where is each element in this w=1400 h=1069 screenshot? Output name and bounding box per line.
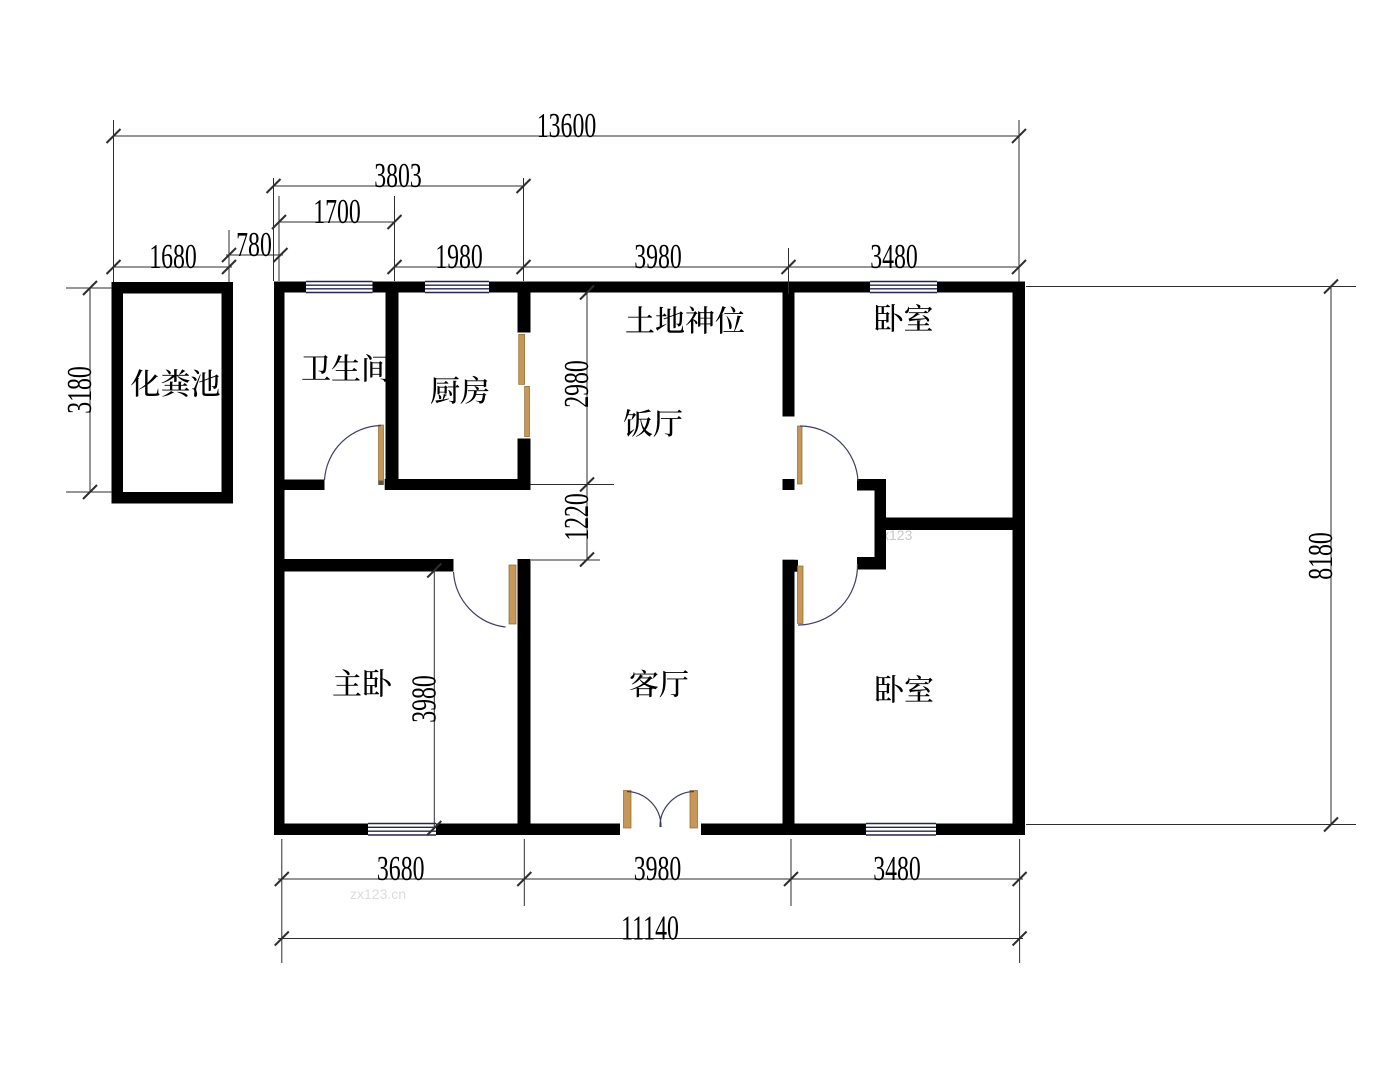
svg-text:3680: 3680 xyxy=(377,850,425,889)
svg-text:11140: 11140 xyxy=(621,909,679,948)
svg-text:1220: 1220 xyxy=(558,493,597,541)
svg-text:1680: 1680 xyxy=(149,238,197,277)
svg-text:2980: 2980 xyxy=(558,360,597,408)
svg-text:3803: 3803 xyxy=(374,157,422,196)
svg-text:3480: 3480 xyxy=(870,238,918,277)
svg-text:13600: 13600 xyxy=(537,107,596,146)
svg-text:3180: 3180 xyxy=(61,366,100,414)
svg-text:3980: 3980 xyxy=(634,238,682,277)
svg-text:780: 780 xyxy=(236,226,272,265)
svg-text:1980: 1980 xyxy=(435,238,483,277)
svg-text:3980: 3980 xyxy=(405,675,444,723)
svg-text:3980: 3980 xyxy=(634,850,682,889)
svg-text:3480: 3480 xyxy=(873,850,921,889)
svg-text:8180: 8180 xyxy=(1302,532,1341,580)
svg-text:zx123.cn: zx123.cn xyxy=(350,886,406,902)
svg-text:1700: 1700 xyxy=(313,193,361,232)
